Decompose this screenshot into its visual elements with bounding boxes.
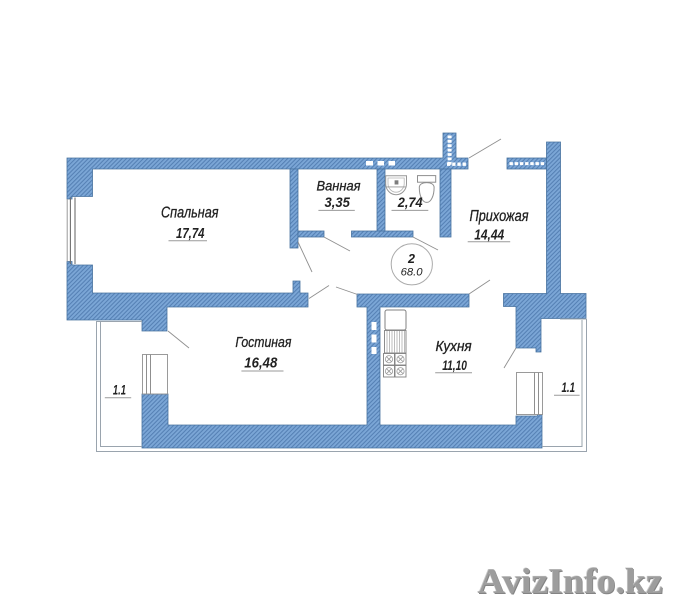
svg-text:2: 2 [407, 252, 415, 266]
svg-text:1.1: 1.1 [113, 381, 126, 397]
svg-text:AvizInfo.kz: AvizInfo.kz [478, 561, 663, 600]
svg-text:Кухня: Кухня [436, 339, 472, 355]
svg-text:3,35: 3,35 [325, 194, 350, 210]
svg-text:Прихожая: Прихожая [470, 208, 529, 225]
svg-text:17,74: 17,74 [176, 226, 205, 242]
svg-text:1.1: 1.1 [562, 379, 576, 395]
svg-text:16,48: 16,48 [244, 356, 278, 372]
svg-text:68.0: 68.0 [401, 267, 424, 279]
svg-text:Спальная: Спальная [161, 204, 219, 221]
svg-text:2,74: 2,74 [397, 194, 423, 210]
svg-text:11,10: 11,10 [442, 357, 467, 373]
svg-text:14,44: 14,44 [474, 227, 504, 243]
svg-text:Гостиная: Гостиная [235, 335, 291, 351]
svg-text:Ванная: Ванная [317, 178, 361, 194]
